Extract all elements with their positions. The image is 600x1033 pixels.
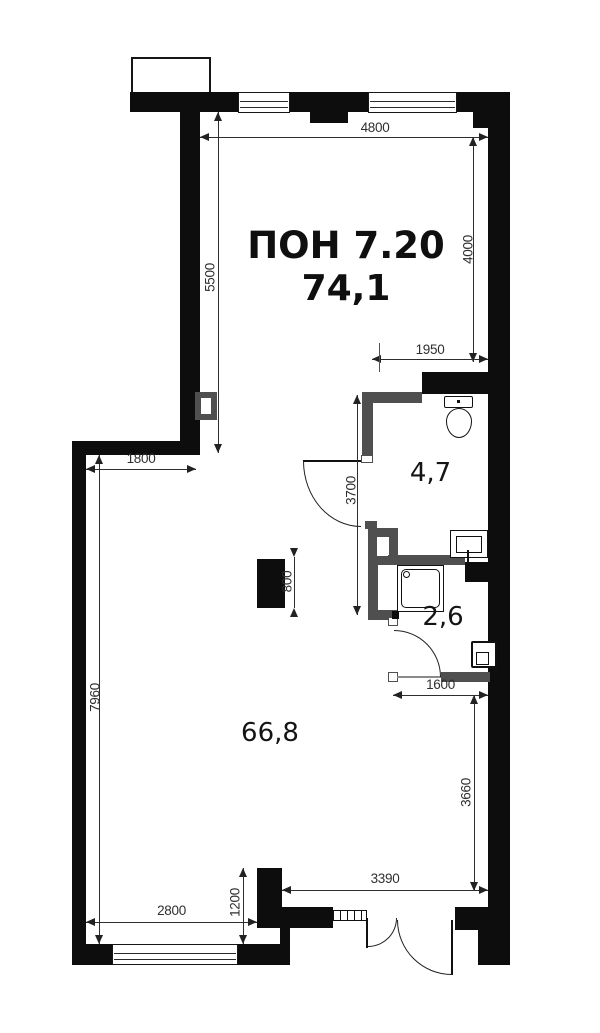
window-glazing xyxy=(370,101,455,108)
wall-entry-step-vertical xyxy=(257,868,282,908)
toilet-bowl xyxy=(446,408,472,438)
wall-entry-connector xyxy=(280,928,290,944)
dim-lower-left-height-label: 7960 xyxy=(88,663,103,733)
water-heater-inner xyxy=(476,652,489,665)
dim-column-height-label: 800 xyxy=(280,547,295,617)
duct-shaft-upper xyxy=(195,392,217,420)
dim-line xyxy=(372,359,488,360)
dim-arrow xyxy=(248,918,257,926)
floor-plan: 4800 5500 4000 1950 3700 1800 800 7960 1… xyxy=(0,0,600,1033)
entrance-left-door-arc xyxy=(368,918,397,947)
wall-entry-right-jamb xyxy=(455,907,488,930)
balcony-outline xyxy=(131,57,211,94)
dim-arrow xyxy=(86,465,95,473)
sink-tap xyxy=(467,550,469,563)
dim-arrow xyxy=(95,455,103,464)
dim-extension-line xyxy=(379,343,380,372)
window-glazing xyxy=(240,101,288,108)
dim-arrow xyxy=(353,395,361,404)
shower-drain xyxy=(403,571,410,578)
window-top-left xyxy=(238,92,290,113)
room-area-bathroom: 4,7 xyxy=(373,458,488,488)
dim-lower-right-height-label: 3660 xyxy=(459,758,474,828)
wall-bathroom-top xyxy=(422,372,488,394)
dim-entry-width-label: 3390 xyxy=(282,871,488,886)
window-glazing xyxy=(114,953,236,960)
dim-line xyxy=(200,137,488,138)
room-area-main: 66,8 xyxy=(190,718,350,748)
dim-bathroom-height-label: 3700 xyxy=(344,456,359,526)
entrance-right-door-arc xyxy=(397,920,452,975)
dim-bottom-width-label: 2800 xyxy=(86,903,257,918)
dim-arrow xyxy=(469,137,477,146)
dim-arrow xyxy=(214,112,222,121)
dim-top-width-label: 4800 xyxy=(290,120,460,135)
window-top-right xyxy=(368,92,457,113)
dim-arrow xyxy=(282,886,291,894)
sink-basin xyxy=(456,536,482,553)
unit-label: ПОН 7.20 xyxy=(196,224,496,268)
dim-arrow xyxy=(393,691,402,699)
dim-bathroom-width-label: 1950 xyxy=(372,342,488,357)
wall-bottom xyxy=(238,944,290,965)
dim-arrow xyxy=(470,695,478,704)
window-bottom xyxy=(112,944,238,965)
unit-title-block: ПОН 7.20 74,1 xyxy=(196,224,496,310)
dim-line xyxy=(282,890,488,891)
total-area-label: 74,1 xyxy=(196,268,496,310)
dim-line xyxy=(474,695,475,891)
dim-line xyxy=(86,922,257,923)
dim-arrow xyxy=(479,691,488,699)
column-at-shower xyxy=(465,562,488,582)
dim-arrow xyxy=(86,918,95,926)
dim-arrow xyxy=(200,133,209,141)
partition-bathroom-left-upper xyxy=(362,392,373,455)
dim-arrow xyxy=(214,444,222,453)
entry-sidelight-sill xyxy=(333,910,367,921)
wall-right xyxy=(488,92,510,965)
shower-room-door-arc xyxy=(394,630,441,677)
wall-entry-horizontal xyxy=(257,907,333,928)
toilet-button xyxy=(457,400,460,403)
dim-arrow xyxy=(353,606,361,615)
wall-bottom-right-corner xyxy=(478,928,488,965)
wall-left xyxy=(72,441,86,965)
dim-arrow xyxy=(479,886,488,894)
dim-line xyxy=(86,469,196,470)
dim-arrow xyxy=(479,133,488,141)
room-area-shower: 2,6 xyxy=(398,602,488,632)
dim-arrow xyxy=(187,465,196,473)
dim-shower-width-label: 1600 xyxy=(393,677,488,692)
door-frame-cap xyxy=(361,455,373,463)
dim-arrow xyxy=(95,935,103,944)
